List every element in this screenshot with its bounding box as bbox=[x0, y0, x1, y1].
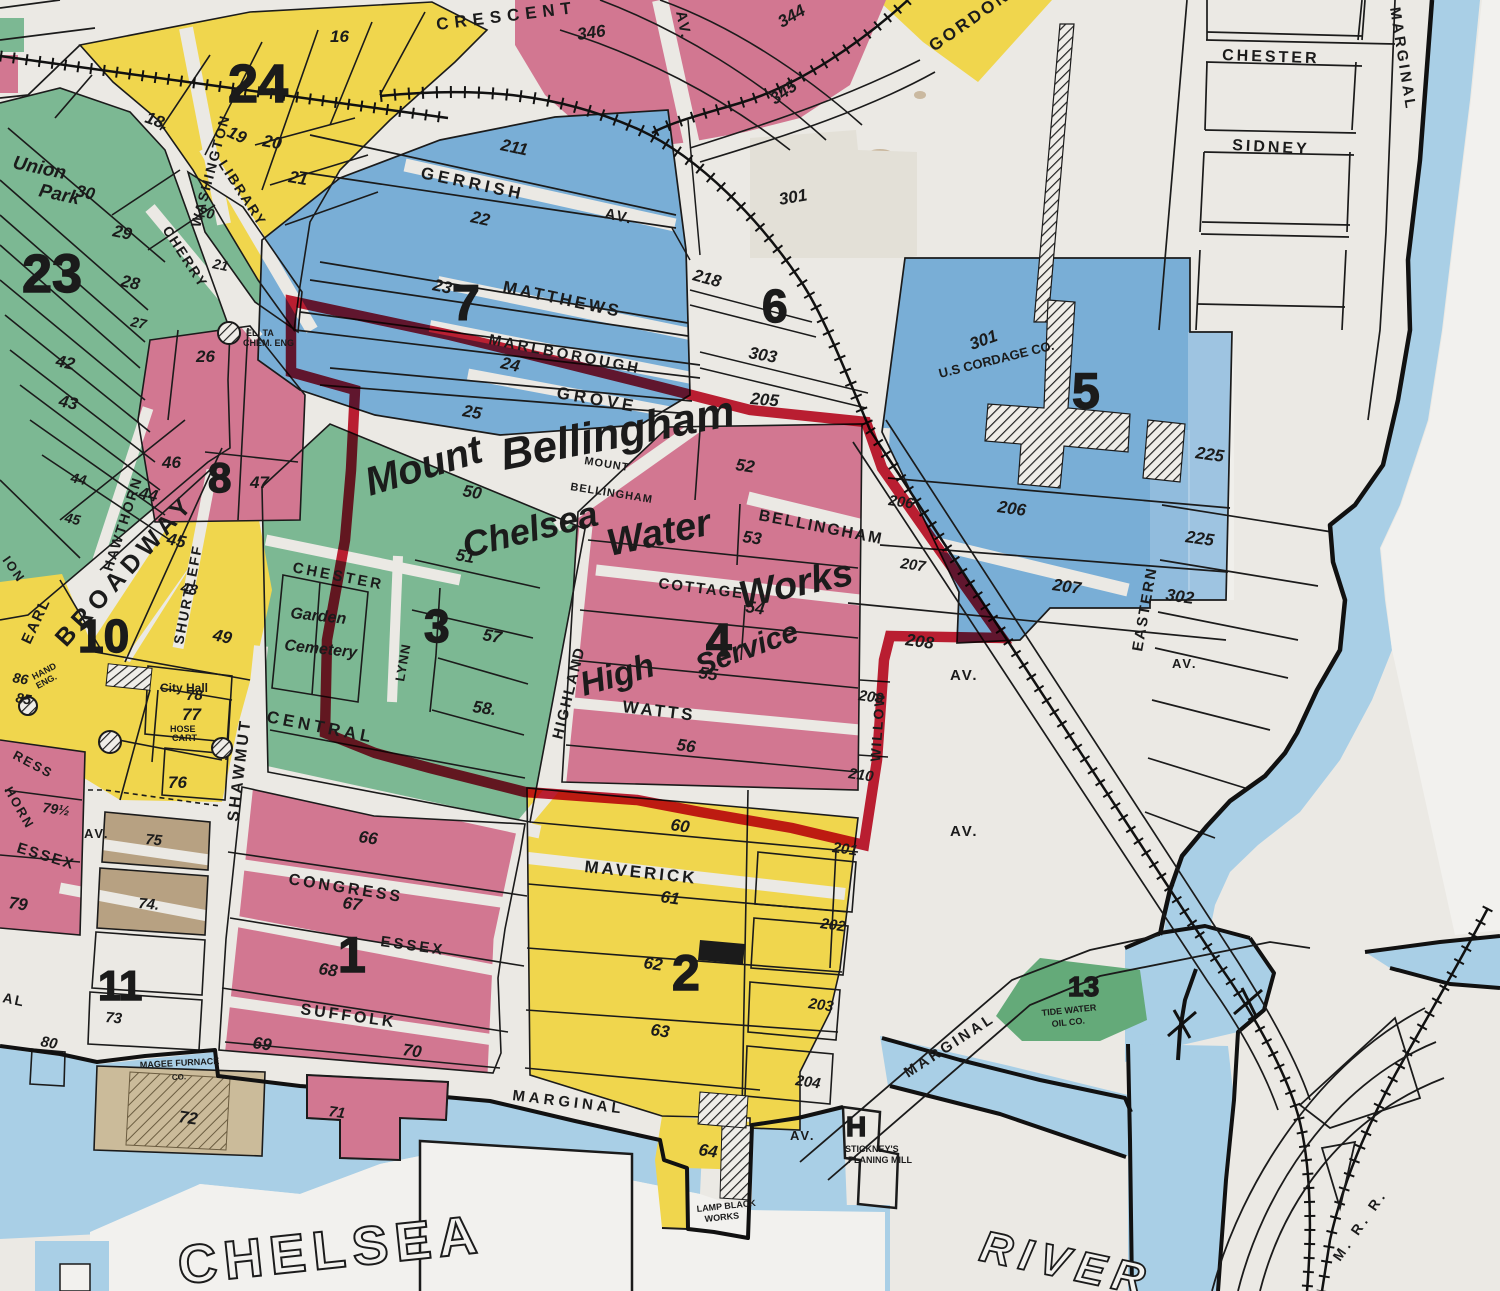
svg-text:8: 8 bbox=[208, 454, 231, 501]
svg-text:46: 46 bbox=[161, 453, 181, 472]
svg-text:CHESTER: CHESTER bbox=[1222, 47, 1320, 67]
svg-text:66: 66 bbox=[357, 827, 379, 849]
svg-text:205: 205 bbox=[749, 389, 780, 411]
svg-text:AV.: AV. bbox=[84, 826, 110, 841]
svg-text:55: 55 bbox=[697, 663, 719, 685]
svg-text:346: 346 bbox=[576, 21, 607, 44]
svg-text:AV.: AV. bbox=[950, 667, 979, 684]
svg-text:7: 7 bbox=[452, 275, 480, 331]
svg-text:21: 21 bbox=[210, 255, 230, 274]
svg-text:24: 24 bbox=[228, 54, 288, 114]
svg-text:CART: CART bbox=[172, 733, 197, 743]
svg-text:60: 60 bbox=[669, 815, 691, 837]
svg-text:51: 51 bbox=[454, 545, 476, 567]
svg-text:20: 20 bbox=[196, 203, 216, 222]
svg-text:H: H bbox=[846, 1111, 866, 1142]
svg-text:6: 6 bbox=[762, 280, 788, 332]
svg-text:69: 69 bbox=[251, 1033, 273, 1055]
svg-text:5: 5 bbox=[1072, 363, 1100, 419]
svg-text:City Hall: City Hall bbox=[160, 681, 208, 695]
svg-text:50: 50 bbox=[461, 481, 483, 503]
svg-text:45: 45 bbox=[62, 509, 82, 528]
svg-text:25: 25 bbox=[460, 401, 483, 423]
svg-text:72: 72 bbox=[177, 1107, 199, 1129]
svg-text:AV.: AV. bbox=[1172, 656, 1198, 671]
svg-text:73: 73 bbox=[105, 1009, 124, 1027]
svg-text:4: 4 bbox=[706, 614, 732, 666]
svg-text:CO.: CO. bbox=[172, 1072, 187, 1082]
svg-text:74.: 74. bbox=[138, 895, 160, 914]
svg-text:62: 62 bbox=[642, 953, 664, 975]
svg-text:79: 79 bbox=[7, 893, 29, 915]
svg-text:13: 13 bbox=[1068, 971, 1099, 1002]
svg-text:10: 10 bbox=[78, 610, 129, 662]
svg-text:75: 75 bbox=[145, 831, 164, 849]
svg-text:302: 302 bbox=[1164, 585, 1195, 608]
svg-text:54: 54 bbox=[744, 597, 766, 619]
svg-text:56: 56 bbox=[675, 735, 697, 757]
svg-text:47: 47 bbox=[249, 473, 270, 492]
svg-text:2: 2 bbox=[672, 945, 700, 1001]
svg-text:53: 53 bbox=[741, 527, 763, 549]
svg-text:68: 68 bbox=[317, 959, 339, 981]
svg-text:64: 64 bbox=[697, 1140, 719, 1162]
svg-text:58.: 58. bbox=[471, 697, 497, 719]
svg-text:AV.: AV. bbox=[790, 1128, 816, 1143]
svg-text:3: 3 bbox=[424, 600, 450, 652]
svg-text:61: 61 bbox=[659, 887, 680, 908]
svg-text:20: 20 bbox=[260, 131, 283, 153]
svg-text:1: 1 bbox=[338, 927, 366, 983]
svg-text:21: 21 bbox=[286, 167, 309, 189]
svg-text:STICKNEY'S: STICKNEY'S bbox=[845, 1144, 899, 1154]
svg-text:23: 23 bbox=[22, 244, 82, 304]
svg-text:71: 71 bbox=[327, 1103, 346, 1122]
svg-text:201: 201 bbox=[830, 839, 858, 859]
svg-text:16: 16 bbox=[330, 27, 349, 46]
svg-text:EL. TA: EL. TA bbox=[246, 328, 274, 338]
svg-text:CHEM. ENG: CHEM. ENG bbox=[243, 338, 294, 348]
svg-text:86: 86 bbox=[11, 669, 29, 687]
svg-text:85: 85 bbox=[14, 689, 32, 707]
svg-text:26: 26 bbox=[195, 347, 215, 366]
svg-text:AV.: AV. bbox=[950, 823, 979, 840]
svg-text:PLANING MILL: PLANING MILL bbox=[848, 1155, 912, 1165]
svg-text:77: 77 bbox=[182, 705, 202, 724]
svg-text:52: 52 bbox=[734, 455, 756, 477]
svg-text:11: 11 bbox=[98, 962, 142, 1009]
svg-text:70: 70 bbox=[401, 1040, 423, 1062]
svg-text:44: 44 bbox=[68, 469, 88, 488]
svg-text:63: 63 bbox=[649, 1020, 671, 1042]
svg-text:76: 76 bbox=[168, 773, 187, 792]
